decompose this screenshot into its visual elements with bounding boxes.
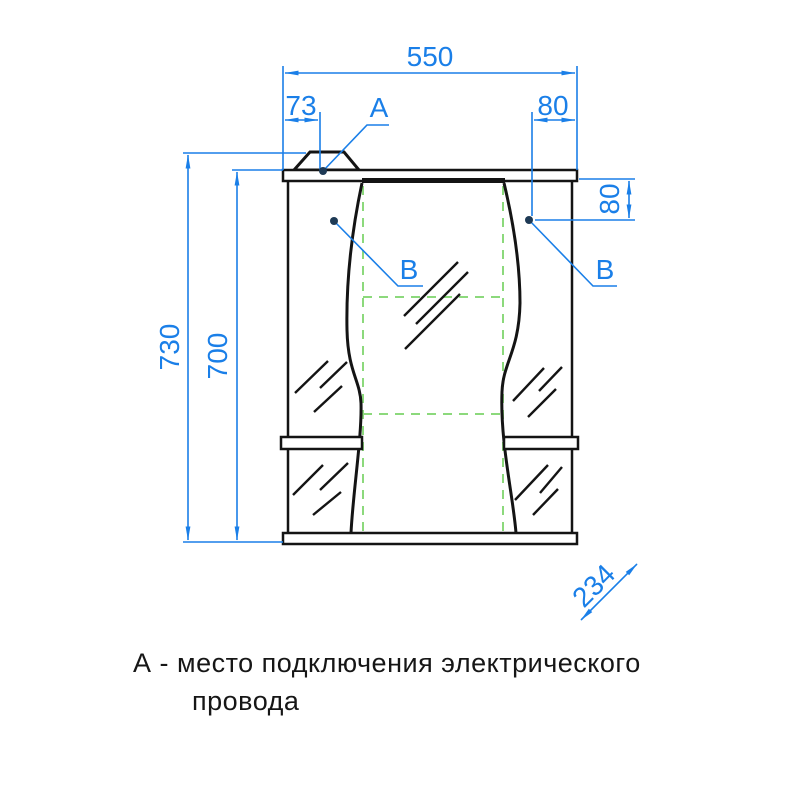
door-top-edge [362,178,505,183]
extension-lines [183,66,635,542]
dot-a [319,167,327,175]
callout-b-right-label: B [585,256,625,284]
dot-b-left [330,217,338,225]
hidden-edge-lines [363,186,503,531]
dot-b-right [525,216,533,224]
dim-label-80-top: 80 [533,92,573,120]
mirror-hatch-right-upper [513,367,562,417]
note-line-1: А - место подключения электрического [133,648,641,678]
mirror-hatch-left-lower [293,463,348,515]
dim-label-550: 550 [395,43,465,71]
mirror-hatch-left-upper [295,361,347,412]
bottom-panel [283,533,577,544]
dim-label-700: 700 [204,316,232,396]
callout-b-left-label: B [389,256,429,284]
note-line-2: провода [192,686,299,716]
drawing-canvas [0,0,800,800]
left-shelf [281,437,362,449]
callout-a-label: A [364,94,394,122]
mirror-hatch-right-lower [515,465,562,515]
right-shelf [504,437,578,449]
dim-label-80-side: 80 [596,169,624,229]
dim-label-73: 73 [281,92,321,120]
technical-drawing: 550 73 80 80 730 700 234 A B B А - место… [0,0,800,800]
door-right-curve [502,183,520,533]
dim-label-730: 730 [156,307,184,387]
glass-hatching [293,262,562,515]
